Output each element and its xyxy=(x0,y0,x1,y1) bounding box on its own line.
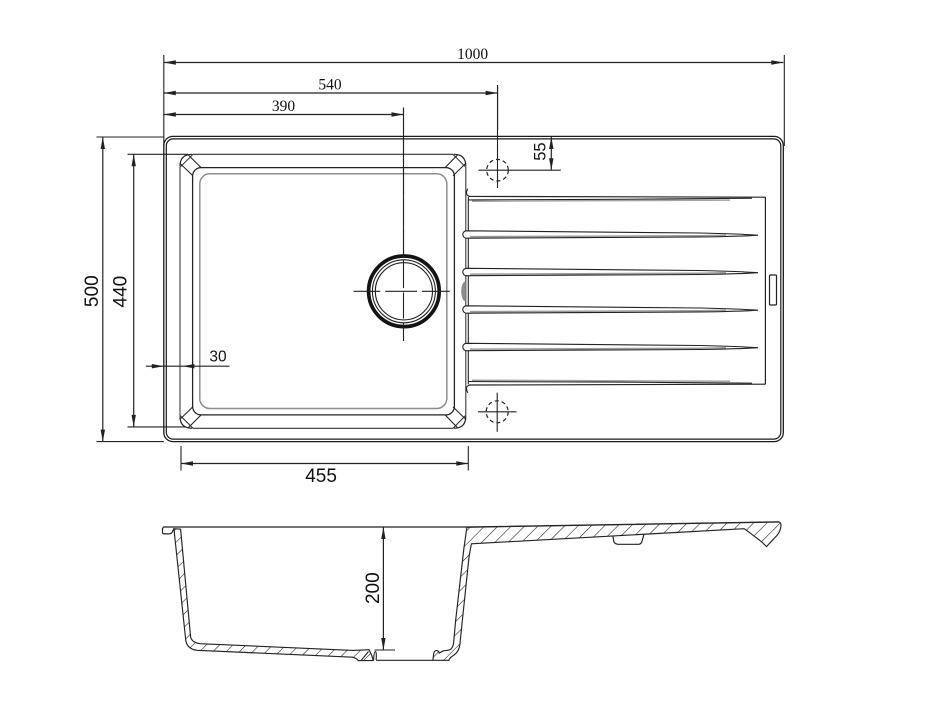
svg-text:455: 455 xyxy=(305,466,337,487)
svg-text:500: 500 xyxy=(82,275,103,307)
svg-text:390: 390 xyxy=(272,98,296,115)
svg-text:30: 30 xyxy=(209,348,227,365)
svg-text:200: 200 xyxy=(363,572,384,604)
svg-text:540: 540 xyxy=(318,76,342,93)
svg-text:55: 55 xyxy=(531,142,549,160)
svg-text:1000: 1000 xyxy=(457,46,488,63)
svg-text:440: 440 xyxy=(110,276,131,308)
